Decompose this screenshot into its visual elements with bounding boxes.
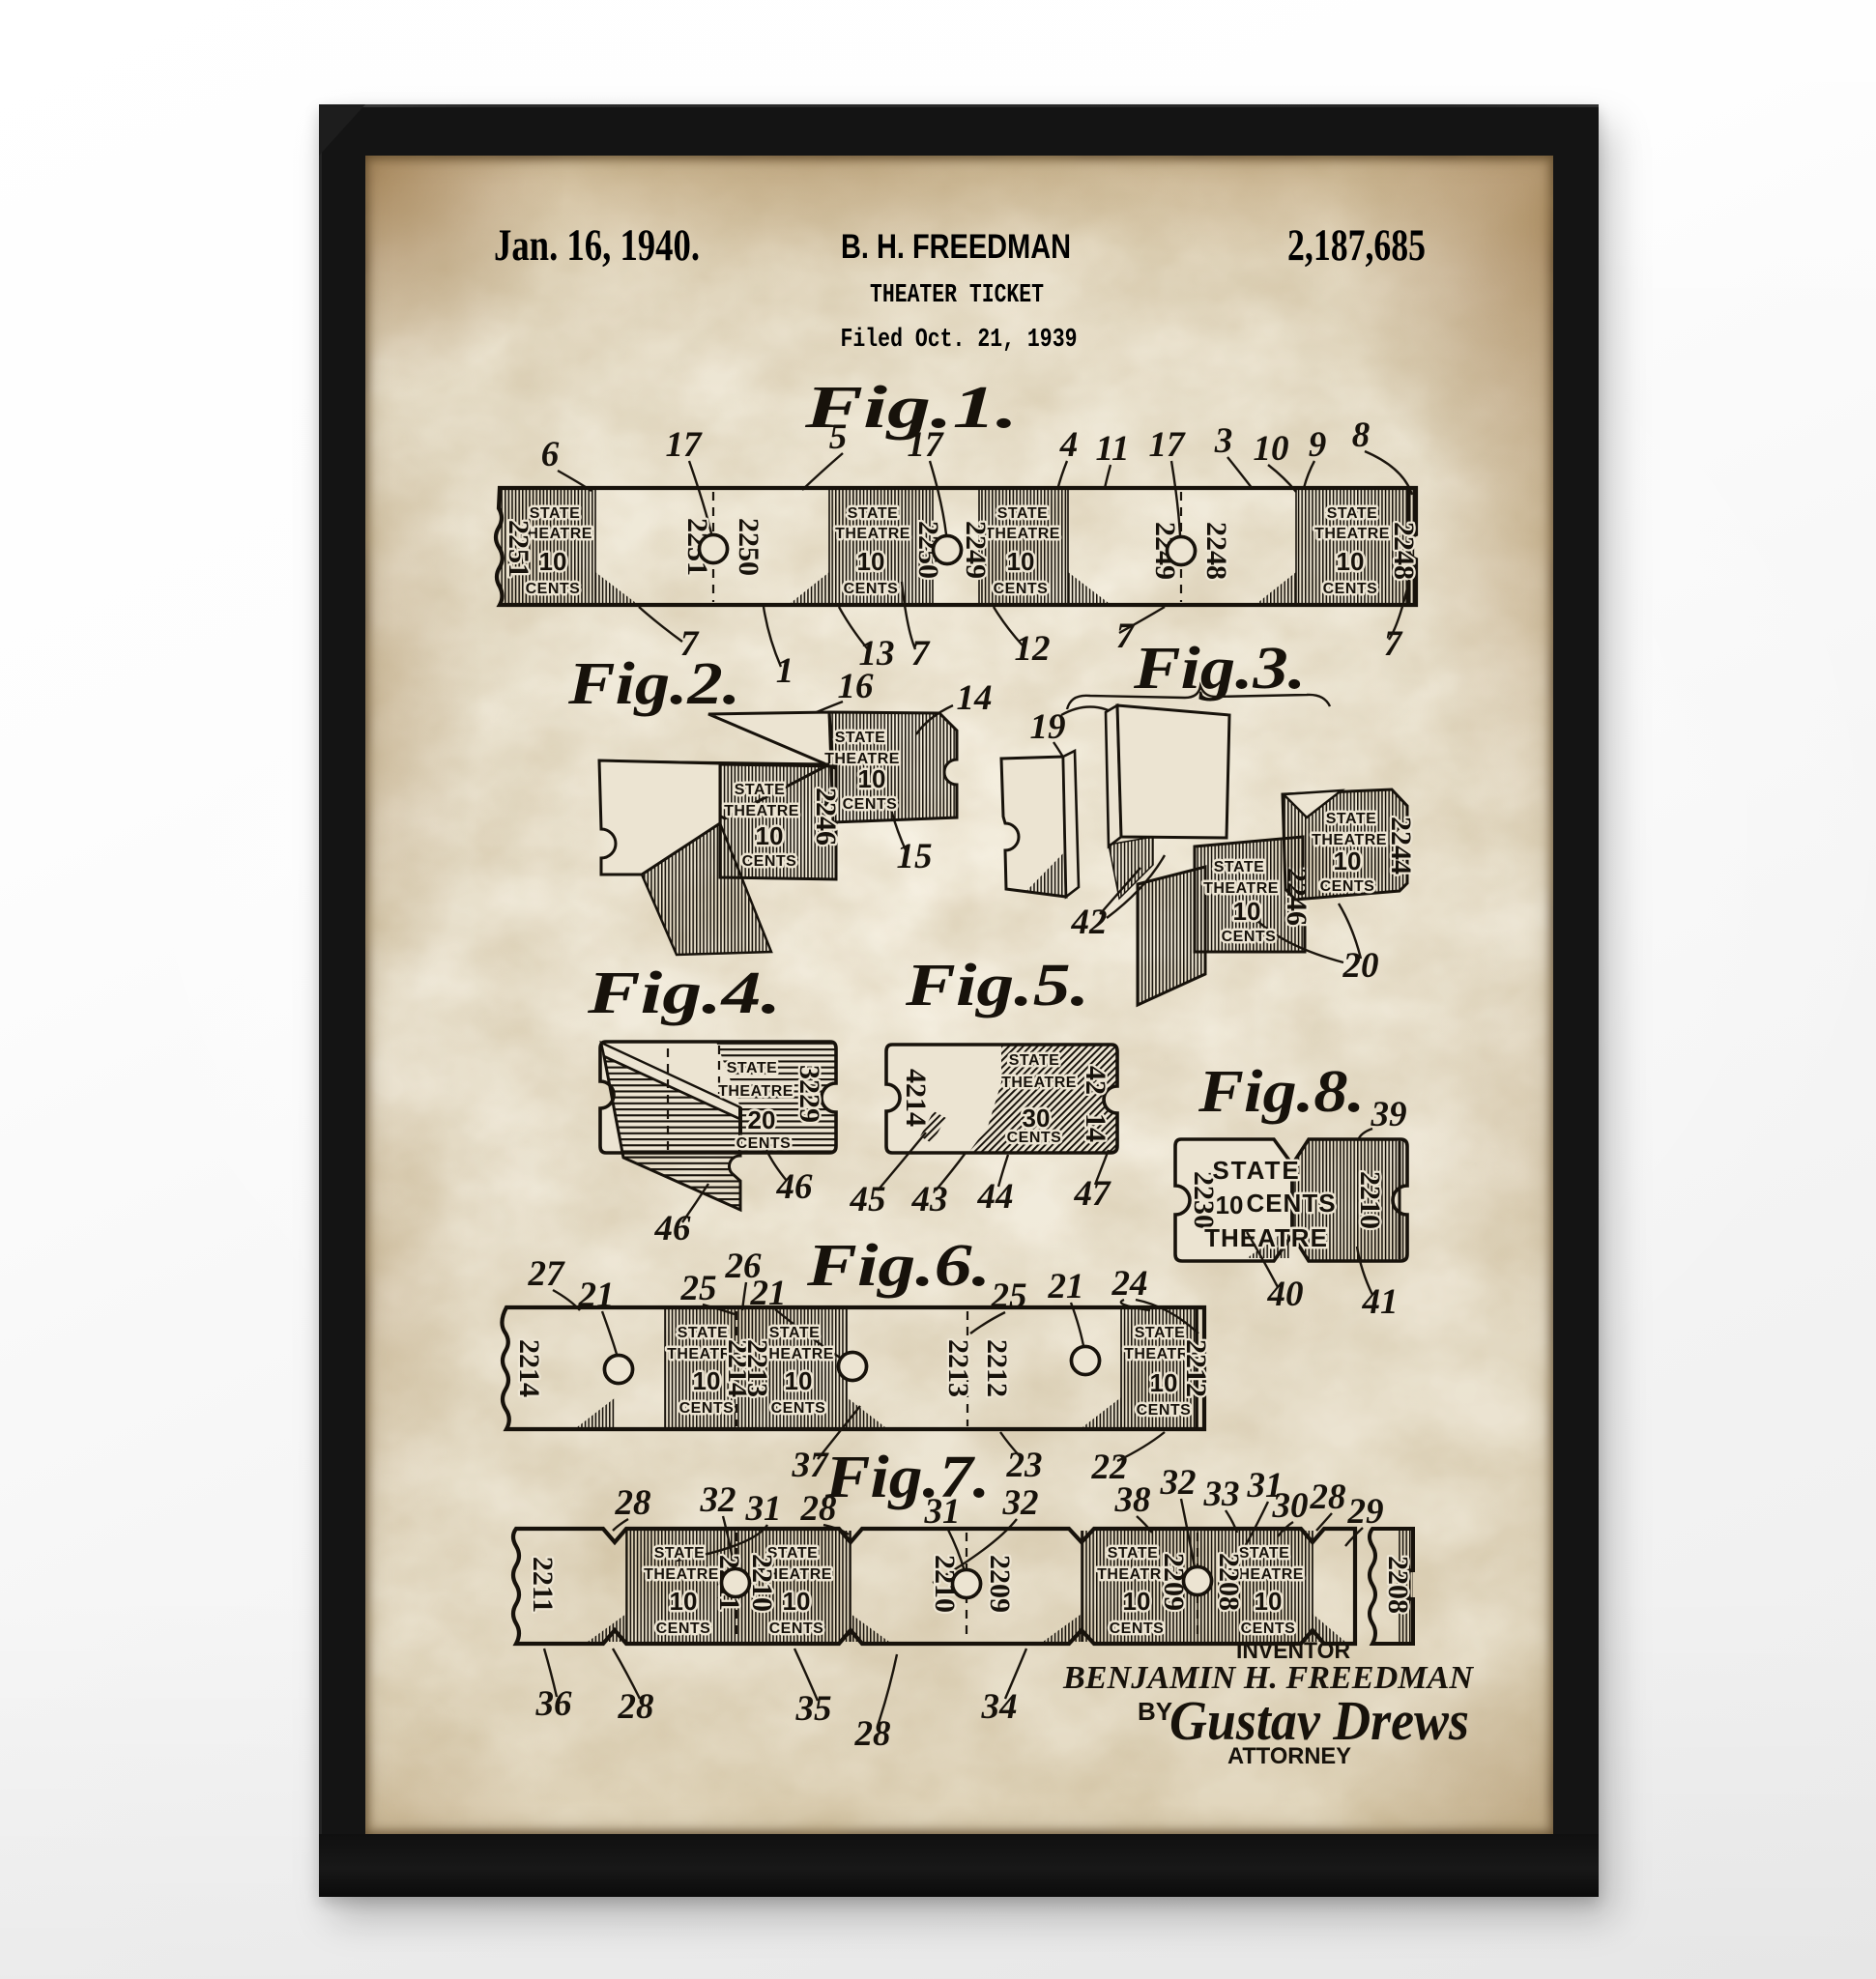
svg-text:10: 10 [693,1366,721,1395]
svg-text:10: 10 [1334,846,1362,875]
svg-text:2213: 2213 [741,1339,773,1397]
svg-text:CENTS: CENTS [769,1620,824,1637]
svg-text:2251: 2251 [503,520,534,578]
svg-text:STATE: STATE [997,505,1049,522]
svg-text:32: 32 [1160,1463,1197,1503]
svg-text:CENTS: CENTS [656,1620,711,1637]
svg-text:14: 14 [957,678,993,718]
svg-text:STATE: STATE [769,1325,821,1341]
svg-text:28: 28 [1310,1477,1346,1517]
svg-text:35: 35 [795,1689,832,1729]
svg-text:27: 27 [528,1254,566,1294]
svg-text:STATE: STATE [1239,1545,1290,1562]
svg-text:STATE: STATE [1009,1052,1060,1069]
svg-text:2244: 2244 [1385,817,1417,875]
svg-text:CENTS: CENTS [1246,1189,1336,1218]
svg-text:10: 10 [1337,547,1365,576]
svg-text:4214: 4214 [900,1069,932,1127]
svg-text:19: 19 [1030,707,1066,747]
svg-text:CENTS: CENTS [1137,1402,1192,1419]
svg-text:CENTS: CENTS [679,1400,735,1417]
svg-text:31: 31 [924,1492,961,1532]
svg-text:21: 21 [1048,1267,1084,1306]
svg-text:32: 32 [700,1480,736,1520]
svg-text:28: 28 [800,1489,837,1529]
svg-text:14: 14 [1080,1113,1111,1142]
svg-text:BY: BY [1138,1697,1172,1726]
svg-text:17: 17 [666,425,704,465]
svg-text:7: 7 [1116,617,1136,656]
svg-text:10: 10 [1255,1587,1283,1616]
svg-text:2250: 2250 [733,518,765,576]
svg-text:10: 10 [539,547,567,576]
svg-text:CENTS: CENTS [1320,878,1375,895]
svg-text:17: 17 [908,425,945,465]
svg-text:B. H. FREEDMAN: B. H. FREEDMAN [841,228,1071,266]
svg-text:10: 10 [785,1366,813,1395]
svg-text:CENTS: CENTS [1241,1620,1296,1637]
svg-text:Fig.3.: Fig.3. [1133,636,1306,702]
svg-text:4: 4 [1059,425,1079,465]
svg-text:STATE: STATE [1212,1156,1300,1185]
svg-text:7: 7 [911,634,931,674]
svg-text:36: 36 [535,1684,573,1724]
svg-text:2212: 2212 [1180,1339,1212,1397]
svg-text:STATE: STATE [835,730,886,746]
svg-text:43: 43 [911,1180,948,1219]
svg-text:3229: 3229 [794,1065,825,1123]
svg-text:10: 10 [783,1587,811,1616]
svg-text:20: 20 [748,1105,776,1134]
svg-text:THEATRE: THEATRE [1314,526,1390,542]
svg-text:Fig.8.: Fig.8. [1198,1059,1365,1125]
svg-text:25: 25 [680,1269,717,1308]
svg-text:29: 29 [1347,1492,1384,1532]
svg-text:Fig.4.: Fig.4. [587,961,781,1026]
svg-text:THEATER TICKET: THEATER TICKET [870,281,1044,310]
svg-text:41: 41 [1362,1282,1399,1322]
svg-text:32: 32 [1002,1483,1039,1523]
svg-text:42: 42 [1071,903,1108,942]
svg-text:9: 9 [1309,425,1327,465]
svg-text:CENTS: CENTS [1110,1620,1165,1637]
svg-text:2208: 2208 [1213,1553,1245,1611]
svg-text:STATE: STATE [1327,505,1378,522]
svg-text:STATE: STATE [678,1325,729,1341]
svg-text:34: 34 [981,1687,1018,1727]
svg-text:2211: 2211 [527,1557,559,1613]
svg-text:2208: 2208 [1382,1556,1414,1614]
svg-text:CENTS: CENTS [1222,929,1277,945]
svg-text:THEATRE: THEATRE [1001,1075,1077,1091]
svg-text:Fig.6.: Fig.6. [806,1233,991,1299]
svg-text:STATE: STATE [848,505,899,522]
svg-text:3: 3 [1214,421,1233,461]
svg-text:CENTS: CENTS [736,1135,792,1152]
svg-text:Filed Oct. 21, 1939: Filed Oct. 21, 1939 [841,326,1078,355]
svg-text:10: 10 [1123,1587,1151,1616]
svg-text:THEATRE: THEATRE [644,1566,719,1583]
svg-text:12: 12 [1015,629,1051,669]
svg-text:ATTORNEY: ATTORNEY [1227,1743,1351,1769]
svg-text:Fig.7.: Fig.7. [824,1445,990,1510]
svg-text:CENTS: CENTS [1007,1130,1062,1146]
svg-text:CENTS: CENTS [844,581,899,597]
svg-text:CENTS: CENTS [526,581,581,597]
svg-text:Fig.5.: Fig.5. [905,953,1089,1018]
svg-text:16: 16 [838,667,875,706]
svg-text:30: 30 [1023,1104,1051,1133]
svg-text:33: 33 [1203,1475,1240,1514]
svg-text:STATE: STATE [1108,1545,1159,1562]
svg-text:STATE: STATE [654,1545,706,1562]
svg-text:28: 28 [615,1483,651,1523]
svg-text:5: 5 [829,417,848,457]
svg-text:2246: 2246 [810,788,842,846]
svg-text:8: 8 [1352,416,1371,455]
svg-text:Fig.2.: Fig.2. [567,651,740,717]
svg-text:10: 10 [670,1587,698,1616]
svg-text:31: 31 [745,1489,782,1529]
svg-text:2210: 2210 [1354,1171,1386,1229]
svg-text:11: 11 [1096,429,1130,469]
svg-text:THEATRE: THEATRE [985,526,1060,542]
svg-text:38: 38 [1114,1480,1151,1520]
svg-text:42: 42 [1080,1066,1111,1095]
svg-text:2248: 2248 [1388,522,1420,580]
svg-text:20: 20 [1342,946,1379,986]
svg-text:CENTS: CENTS [771,1400,826,1417]
svg-text:STATE: STATE [530,505,581,522]
svg-text:30: 30 [1272,1486,1309,1526]
svg-text:1: 1 [776,651,794,691]
svg-text:24: 24 [1111,1264,1148,1304]
svg-text:23: 23 [1006,1446,1043,1485]
svg-text:STATE: STATE [735,782,786,798]
svg-text:STATE: STATE [1135,1325,1186,1341]
svg-text:CENTS: CENTS [742,853,797,870]
svg-text:2248: 2248 [1200,522,1232,580]
svg-text:39: 39 [1371,1095,1407,1134]
svg-text:10: 10 [1216,1190,1244,1219]
svg-text:17: 17 [1149,425,1187,465]
svg-text:28: 28 [854,1714,891,1754]
svg-text:Jan. 16, 1940.: Jan. 16, 1940. [494,220,700,271]
svg-text:CENTS: CENTS [1323,581,1378,597]
svg-text:25: 25 [991,1276,1027,1316]
svg-text:10: 10 [756,821,784,850]
svg-text:STATE: STATE [727,1060,778,1076]
svg-text:40: 40 [1267,1275,1304,1314]
svg-text:THEATRE: THEATRE [1204,1223,1328,1252]
svg-text:10: 10 [858,764,886,793]
svg-text:THEATRE: THEATRE [1203,880,1279,897]
svg-text:2214: 2214 [513,1339,545,1397]
svg-text:10: 10 [857,547,885,576]
svg-text:THEATRE: THEATRE [835,526,910,542]
svg-text:10: 10 [1150,1368,1178,1397]
svg-text:6: 6 [541,435,560,474]
svg-text:THEATRE: THEATRE [718,1083,794,1100]
svg-text:STATE: STATE [1326,811,1377,827]
svg-text:2213: 2213 [942,1339,974,1397]
svg-text:CENTS: CENTS [843,796,898,813]
svg-text:44: 44 [977,1177,1014,1217]
svg-text:CENTS: CENTS [994,581,1049,597]
svg-text:THEATRE: THEATRE [724,803,799,819]
svg-text:2212: 2212 [981,1339,1013,1397]
svg-text:2249: 2249 [960,521,992,579]
svg-text:2,187,685: 2,187,685 [1287,220,1426,271]
svg-text:28: 28 [618,1687,654,1727]
svg-text:10: 10 [1233,897,1261,926]
svg-text:47: 47 [1074,1174,1112,1214]
svg-text:10: 10 [1007,547,1035,576]
svg-text:46: 46 [654,1209,692,1248]
svg-text:2209: 2209 [984,1555,1016,1613]
svg-text:STATE: STATE [1214,859,1265,875]
svg-text:10: 10 [1254,429,1289,469]
